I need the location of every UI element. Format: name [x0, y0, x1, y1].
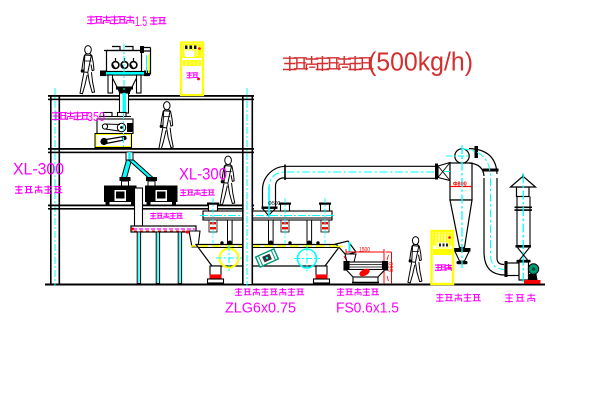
svg-text:FS0.6x1.5: FS0.6x1.5 — [336, 300, 399, 317]
svg-text:Φ800: Φ800 — [453, 182, 467, 188]
svg-text:(500kg/h): (500kg/h) — [368, 49, 473, 77]
svg-text:1500: 1500 — [359, 248, 371, 254]
svg-text:Φ500: Φ500 — [268, 201, 281, 207]
svg-text:XL-300: XL-300 — [13, 160, 64, 179]
svg-text:XL-300: XL-300 — [179, 165, 227, 184]
svg-text:ZLG6x0.75: ZLG6x0.75 — [225, 300, 296, 317]
svg-text:550: 550 — [389, 261, 395, 272]
svg-text:350: 350 — [87, 109, 105, 124]
svg-text:1.5: 1.5 — [135, 14, 147, 29]
